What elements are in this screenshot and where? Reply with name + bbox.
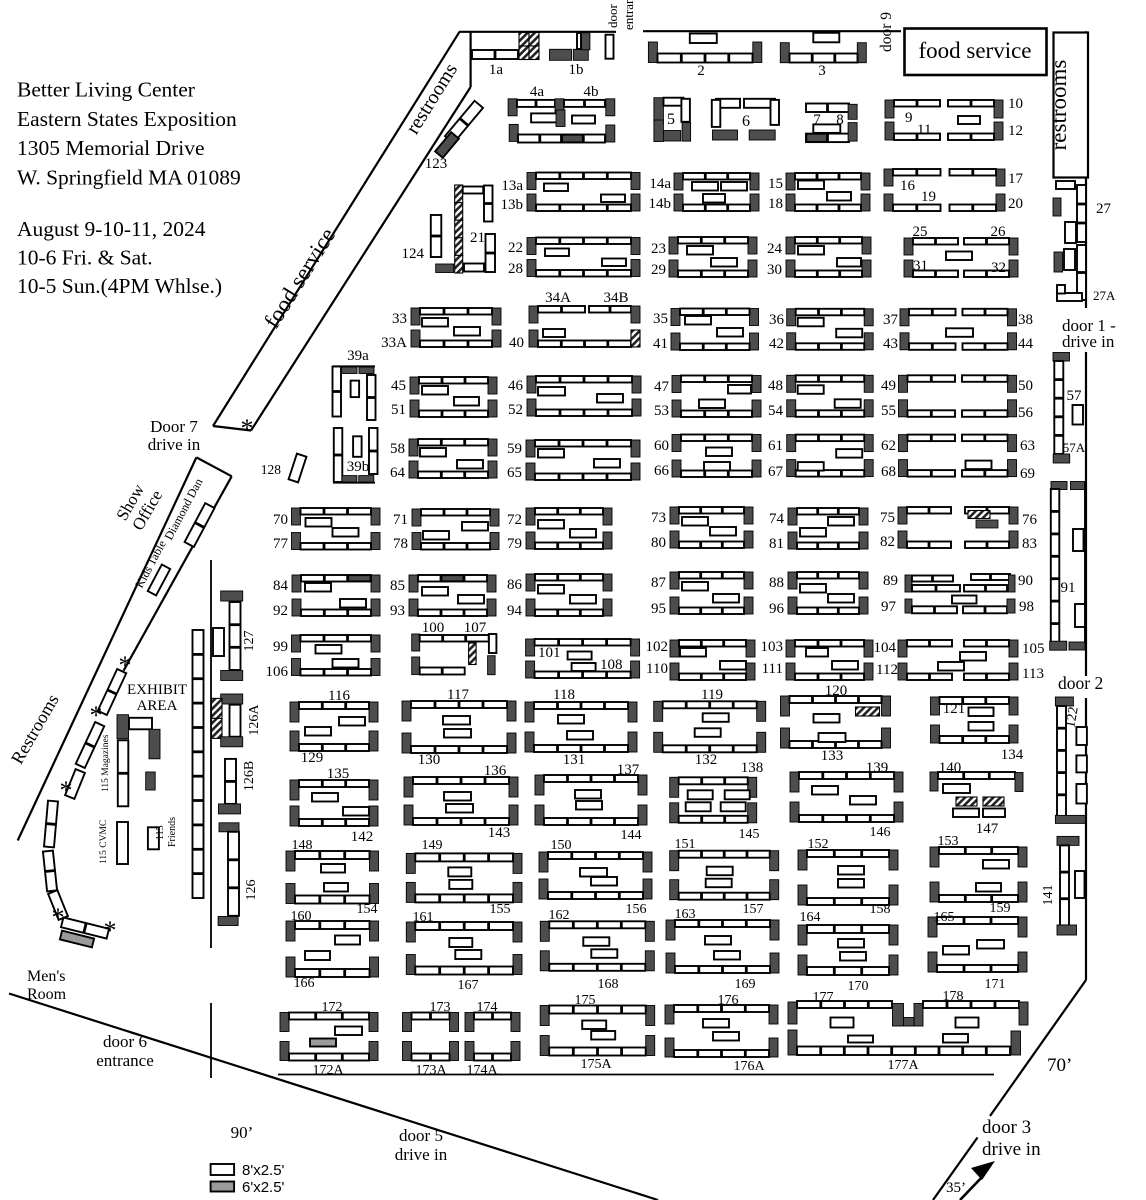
svg-text:156: 156: [626, 902, 647, 917]
svg-text:5: 5: [667, 111, 675, 128]
svg-text:67: 67: [768, 464, 784, 480]
svg-text:Better Living Center: Better Living Center: [17, 78, 195, 102]
svg-text:8: 8: [836, 112, 844, 128]
svg-text:70: 70: [273, 512, 288, 528]
svg-text:6'x2.5': 6'x2.5': [242, 1179, 285, 1196]
svg-text:57A: 57A: [1063, 440, 1086, 455]
svg-text:112: 112: [876, 662, 898, 678]
svg-text:143: 143: [488, 825, 511, 841]
svg-text:drive in: drive in: [395, 1145, 448, 1164]
svg-text:32: 32: [991, 260, 1006, 276]
svg-text:38: 38: [1018, 312, 1033, 328]
svg-text:163: 163: [675, 907, 696, 922]
svg-text:58: 58: [390, 441, 405, 457]
svg-text:108: 108: [600, 657, 623, 673]
svg-text:138: 138: [741, 760, 764, 776]
svg-text:101: 101: [538, 645, 561, 661]
svg-text:92: 92: [273, 603, 288, 619]
svg-text:17: 17: [1008, 171, 1024, 187]
svg-text:153: 153: [938, 834, 959, 849]
svg-text:22: 22: [508, 240, 523, 256]
svg-text:110: 110: [646, 661, 668, 677]
svg-text:89: 89: [883, 573, 898, 589]
svg-text:78: 78: [393, 536, 408, 552]
svg-text:97: 97: [881, 599, 897, 615]
svg-text:14b: 14b: [649, 196, 672, 212]
svg-text:55: 55: [881, 403, 896, 419]
svg-text:*: *: [104, 916, 117, 945]
svg-text:84: 84: [273, 578, 289, 594]
svg-text:170: 170: [848, 979, 869, 994]
svg-text:135: 135: [327, 766, 350, 782]
svg-text:34B: 34B: [603, 290, 628, 306]
svg-text:16: 16: [900, 178, 916, 194]
svg-text:60: 60: [654, 438, 669, 454]
svg-text:30: 30: [767, 262, 782, 278]
svg-text:136: 136: [484, 763, 507, 779]
svg-text:157: 157: [743, 902, 764, 917]
svg-text:15: 15: [768, 176, 783, 192]
svg-text:10-5 Sun.(4PM Whlse.): 10-5 Sun.(4PM Whlse.): [17, 274, 222, 298]
svg-text:49: 49: [881, 378, 896, 394]
svg-text:175A: 175A: [580, 1057, 612, 1072]
svg-text:94: 94: [507, 603, 523, 619]
svg-text:8'x2.5': 8'x2.5': [242, 1162, 285, 1179]
svg-text:96: 96: [769, 601, 785, 617]
svg-text:2: 2: [697, 63, 705, 79]
svg-text:entrance: entrance: [621, 0, 636, 30]
svg-text:food service: food service: [918, 38, 1031, 63]
svg-text:21: 21: [470, 230, 485, 246]
svg-text:167: 167: [458, 978, 479, 993]
svg-text:137: 137: [617, 762, 640, 778]
svg-text:71: 71: [393, 512, 408, 528]
svg-text:restrooms: restrooms: [1046, 60, 1071, 151]
svg-text:146: 146: [870, 825, 891, 840]
svg-text:Eastern States Exposition: Eastern States Exposition: [17, 107, 237, 131]
svg-text:158: 158: [870, 902, 891, 917]
svg-text:14a: 14a: [649, 176, 671, 192]
svg-text:3: 3: [818, 63, 826, 79]
svg-text:12: 12: [1008, 123, 1023, 139]
svg-text:104: 104: [874, 640, 897, 656]
svg-text:drive in: drive in: [982, 1139, 1041, 1160]
svg-text:116: 116: [328, 688, 350, 704]
svg-text:176: 176: [718, 993, 739, 1008]
svg-text:171: 171: [985, 977, 1006, 992]
svg-text:25: 25: [913, 224, 928, 240]
svg-text:46: 46: [508, 378, 524, 394]
svg-text:68: 68: [881, 464, 896, 480]
svg-text:174: 174: [477, 1000, 498, 1015]
svg-text:126: 126: [244, 880, 259, 901]
svg-text:51: 51: [391, 402, 406, 418]
svg-text:126A: 126A: [247, 704, 262, 736]
svg-text:4b: 4b: [584, 84, 599, 100]
svg-text:1305 Memorial Drive: 1305 Memorial Drive: [17, 136, 205, 160]
svg-text:129: 129: [301, 750, 324, 766]
svg-text:door 9: door 9: [878, 12, 895, 52]
svg-text:52: 52: [508, 402, 523, 418]
svg-text:176A: 176A: [733, 1059, 765, 1074]
svg-text:119: 119: [701, 687, 723, 703]
svg-text:*: *: [52, 903, 65, 932]
svg-text:59: 59: [507, 441, 522, 457]
svg-text:107: 107: [464, 620, 487, 636]
svg-text:111: 111: [762, 661, 783, 677]
svg-text:43: 43: [883, 336, 898, 352]
svg-text:13a: 13a: [501, 178, 523, 194]
svg-text:48: 48: [768, 378, 783, 394]
svg-text:33: 33: [392, 311, 407, 327]
svg-text:105: 105: [1022, 641, 1045, 657]
svg-text:90’: 90’: [231, 1123, 254, 1142]
svg-text:77: 77: [273, 536, 289, 552]
svg-text:63: 63: [1020, 438, 1035, 454]
svg-text:172A: 172A: [312, 1063, 344, 1078]
svg-text:148: 148: [292, 838, 313, 853]
svg-text:98: 98: [1019, 599, 1034, 615]
svg-text:173: 173: [430, 1000, 451, 1015]
svg-text:70’: 70’: [1047, 1055, 1072, 1076]
svg-text:drive in: drive in: [148, 435, 201, 454]
svg-text:1a: 1a: [489, 62, 504, 78]
svg-text:82: 82: [880, 534, 895, 550]
svg-text:160: 160: [291, 909, 312, 924]
svg-text:53: 53: [654, 403, 669, 419]
svg-text:35’: 35’: [946, 1180, 966, 1196]
svg-text:door: door: [605, 4, 620, 29]
svg-text:102: 102: [646, 639, 669, 655]
svg-text:65: 65: [507, 465, 522, 481]
svg-text:7: 7: [813, 112, 821, 128]
svg-text:34A: 34A: [545, 290, 571, 306]
svg-text:140: 140: [939, 760, 962, 776]
svg-text:115 CVMC: 115 CVMC: [99, 820, 109, 864]
svg-text:144: 144: [621, 828, 642, 843]
svg-text:6: 6: [742, 113, 750, 130]
svg-text:Friends: Friends: [167, 817, 178, 847]
svg-text:154: 154: [357, 902, 378, 917]
svg-text:39b: 39b: [347, 459, 370, 475]
svg-text:4a: 4a: [530, 84, 545, 100]
svg-text:93: 93: [390, 603, 405, 619]
svg-text:159: 159: [990, 901, 1011, 916]
svg-text:115 Magazines: 115 Magazines: [101, 734, 111, 792]
svg-text:drive in: drive in: [1062, 332, 1115, 351]
svg-text:127: 127: [242, 631, 257, 652]
svg-text:door 3: door 3: [982, 1117, 1031, 1138]
svg-text:62: 62: [881, 438, 896, 454]
svg-text:42: 42: [769, 336, 784, 352]
svg-text:10-6 Fri. & Sat.: 10-6 Fri. & Sat.: [17, 246, 153, 270]
svg-text:141: 141: [1041, 885, 1056, 906]
svg-text:124: 124: [402, 246, 425, 262]
svg-text:37: 37: [883, 312, 899, 328]
svg-text:120: 120: [825, 683, 848, 699]
svg-text:August 9-10-11, 2024: August 9-10-11, 2024: [17, 217, 206, 241]
svg-text:61: 61: [768, 438, 783, 454]
svg-text:9: 9: [905, 110, 913, 126]
svg-text:117: 117: [447, 687, 469, 703]
svg-text:29: 29: [651, 262, 666, 278]
svg-text:177: 177: [813, 990, 834, 1005]
svg-text:99: 99: [273, 639, 288, 655]
svg-text:EXHIBIT: EXHIBIT: [127, 682, 187, 698]
svg-text:39a: 39a: [347, 348, 369, 364]
svg-text:161: 161: [413, 910, 434, 925]
svg-text:106: 106: [266, 664, 289, 680]
svg-text:147: 147: [976, 821, 999, 837]
svg-text:164: 164: [800, 910, 821, 925]
svg-text:115: 115: [155, 825, 166, 840]
svg-text:36: 36: [769, 312, 785, 328]
svg-text:81: 81: [769, 536, 784, 552]
svg-text:128: 128: [261, 462, 282, 477]
svg-text:20: 20: [1008, 196, 1023, 212]
svg-text:27: 27: [1096, 201, 1112, 217]
svg-text:10: 10: [1008, 96, 1023, 112]
svg-text:177A: 177A: [887, 1058, 919, 1073]
svg-text:73: 73: [651, 510, 666, 526]
svg-text:178: 178: [943, 989, 964, 1004]
svg-text:91: 91: [1061, 580, 1076, 596]
svg-text:23: 23: [651, 241, 666, 257]
svg-text:75: 75: [880, 510, 895, 526]
svg-text:74: 74: [769, 511, 785, 527]
svg-text:72: 72: [507, 512, 522, 528]
svg-text:130: 130: [418, 752, 441, 768]
svg-text:35: 35: [653, 311, 668, 327]
svg-text:19: 19: [921, 189, 936, 205]
svg-text:Door 7: Door 7: [150, 417, 198, 436]
svg-text:40: 40: [509, 335, 524, 351]
svg-text:24: 24: [767, 241, 783, 257]
svg-text:100: 100: [422, 620, 445, 636]
svg-text:133: 133: [821, 748, 844, 764]
svg-text:113: 113: [1022, 666, 1044, 682]
svg-text:47: 47: [654, 379, 670, 395]
svg-text:door 5: door 5: [399, 1126, 443, 1145]
svg-text:103: 103: [761, 639, 784, 655]
svg-text:149: 149: [422, 838, 443, 853]
svg-text:31: 31: [913, 258, 928, 274]
svg-text:83: 83: [1022, 536, 1037, 552]
svg-text:132: 132: [695, 752, 718, 768]
svg-text:150: 150: [551, 838, 572, 853]
svg-text:174A: 174A: [466, 1063, 498, 1078]
svg-text:145: 145: [739, 827, 760, 842]
svg-text:*: *: [241, 414, 254, 443]
svg-text:27A: 27A: [1093, 288, 1116, 303]
svg-text:126B: 126B: [242, 761, 257, 791]
svg-text:88: 88: [769, 575, 784, 591]
svg-text:64: 64: [390, 465, 406, 481]
svg-text:*: *: [90, 701, 103, 730]
svg-text:87: 87: [651, 575, 667, 591]
svg-text:13b: 13b: [501, 197, 524, 213]
svg-text:76: 76: [1022, 512, 1038, 528]
svg-text:50: 50: [1018, 378, 1033, 394]
svg-text:33A: 33A: [381, 335, 407, 351]
svg-text:123: 123: [425, 156, 448, 172]
svg-text:28: 28: [508, 261, 523, 277]
svg-text:175: 175: [575, 993, 596, 1008]
svg-text:168: 168: [598, 977, 619, 992]
svg-text:151: 151: [675, 837, 696, 852]
svg-text:57: 57: [1067, 388, 1083, 404]
svg-text:41: 41: [653, 336, 668, 352]
svg-text:85: 85: [390, 578, 405, 594]
svg-text:142: 142: [351, 829, 374, 845]
svg-text:131: 131: [563, 752, 586, 768]
svg-text:1b: 1b: [569, 62, 584, 78]
svg-text:18: 18: [768, 196, 783, 212]
svg-text:door 6: door 6: [103, 1032, 147, 1051]
svg-text:79: 79: [507, 536, 522, 552]
svg-text:169: 169: [735, 977, 756, 992]
svg-text:162: 162: [549, 908, 570, 923]
svg-text:155: 155: [490, 902, 511, 917]
svg-text:56: 56: [1018, 405, 1034, 421]
svg-text:173A: 173A: [415, 1063, 447, 1078]
svg-text:95: 95: [651, 601, 666, 617]
svg-text:66: 66: [654, 463, 670, 479]
svg-text:172: 172: [322, 1000, 343, 1015]
svg-text:W. Springfield MA 01089: W. Springfield MA 01089: [17, 166, 241, 190]
svg-text:86: 86: [507, 577, 523, 593]
svg-text:AREA: AREA: [137, 698, 178, 714]
svg-text:165: 165: [934, 910, 955, 925]
svg-text:54: 54: [768, 403, 784, 419]
svg-text:166: 166: [294, 976, 315, 991]
svg-text:90: 90: [1018, 573, 1033, 589]
svg-text:entrance: entrance: [96, 1051, 154, 1070]
svg-text:45: 45: [391, 378, 406, 394]
svg-text:Room: Room: [27, 986, 67, 1003]
svg-text:118: 118: [553, 687, 575, 703]
svg-text:11: 11: [917, 122, 931, 138]
svg-text:80: 80: [651, 535, 666, 551]
svg-text:*: *: [119, 651, 132, 680]
svg-text:134: 134: [1001, 747, 1024, 763]
svg-text:121: 121: [943, 701, 966, 717]
svg-text:Men's: Men's: [27, 968, 65, 985]
svg-text:69: 69: [1020, 466, 1035, 482]
svg-text:26: 26: [991, 224, 1007, 240]
svg-text:44: 44: [1018, 336, 1034, 352]
svg-text:152: 152: [808, 837, 829, 852]
svg-text:door 2: door 2: [1058, 673, 1103, 693]
svg-text:139: 139: [866, 760, 889, 776]
svg-text:*: *: [60, 776, 73, 805]
